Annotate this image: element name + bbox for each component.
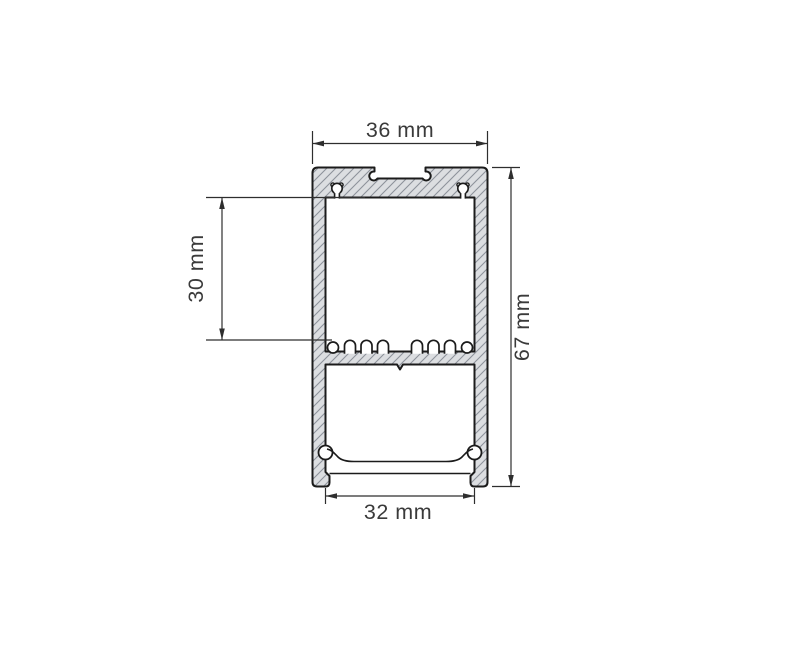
dimension-inner-height: 30 mm	[184, 198, 365, 341]
dimension-label-bottom-width: 32 mm	[364, 500, 432, 524]
profile-cross-section-drawing: 36 mm 30 mm 67 mm	[0, 0, 800, 655]
dimension-top-width: 36 mm	[313, 118, 488, 164]
dimension-label-top-width: 36 mm	[366, 118, 434, 142]
dimension-total-height: 67 mm	[492, 168, 534, 487]
arrowhead-top	[508, 168, 514, 180]
dimension-label-total-height: 67 mm	[510, 293, 534, 361]
diffuser	[327, 449, 473, 474]
screw-boss-right	[468, 446, 482, 460]
technical-drawing-page: 36 mm 30 mm 67 mm	[0, 0, 800, 655]
clamp-hook-left	[328, 342, 339, 353]
arrowhead-bottom	[219, 329, 225, 341]
profile-silhouette	[313, 168, 488, 487]
dimension-bottom-width: 32 mm	[326, 488, 475, 524]
arrowhead-left	[313, 141, 325, 147]
diffuser-top-line	[327, 449, 473, 462]
profile-body	[313, 168, 488, 487]
arrowhead-right	[476, 141, 488, 147]
arrowhead-top	[219, 198, 225, 210]
screw-boss-left	[319, 446, 333, 460]
arrowhead-left	[326, 493, 338, 499]
arrowhead-bottom	[508, 475, 514, 487]
clamp-hook-right	[462, 342, 473, 353]
dimension-label-inner-height: 30 mm	[184, 234, 208, 302]
arrowhead-right	[463, 493, 475, 499]
extension-lines	[206, 198, 365, 341]
